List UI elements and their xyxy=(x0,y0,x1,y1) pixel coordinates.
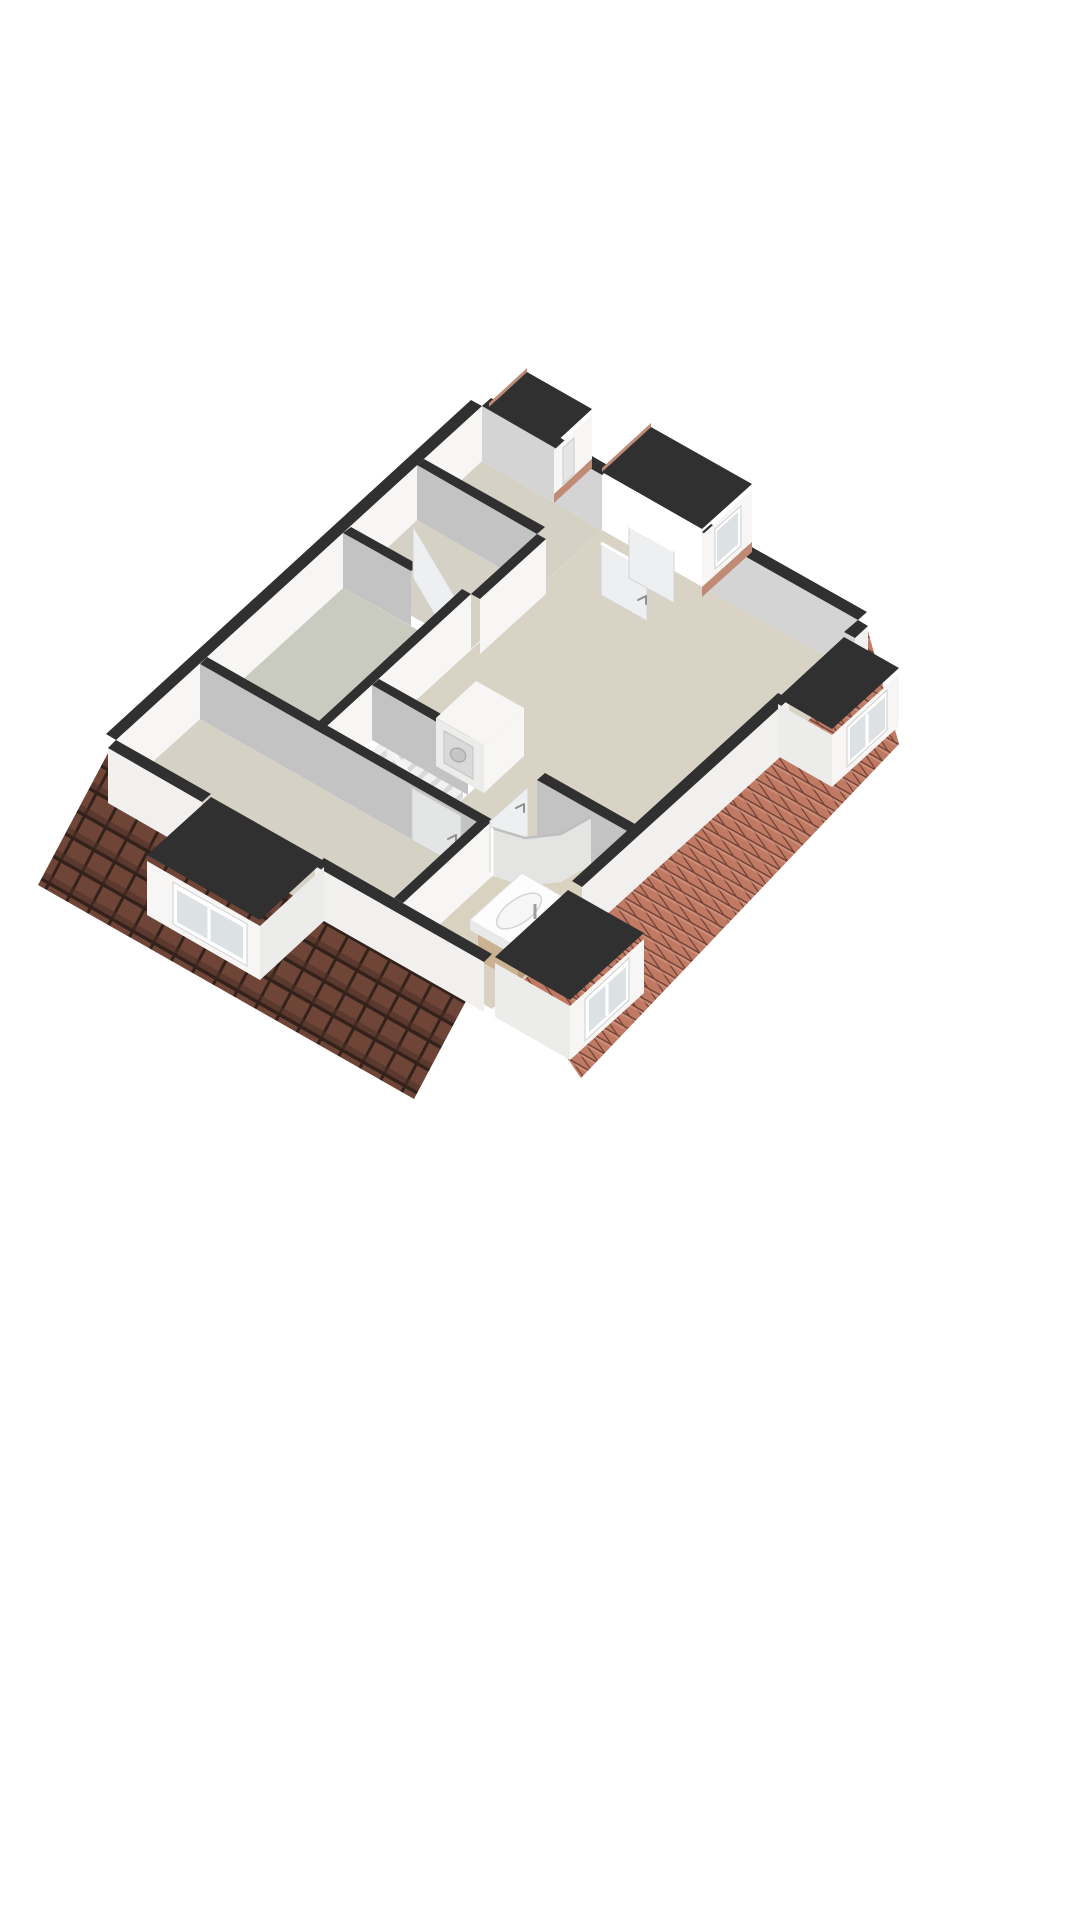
floorplan-canvas xyxy=(0,0,1080,1920)
floorplan-3d-render xyxy=(0,0,1080,1920)
